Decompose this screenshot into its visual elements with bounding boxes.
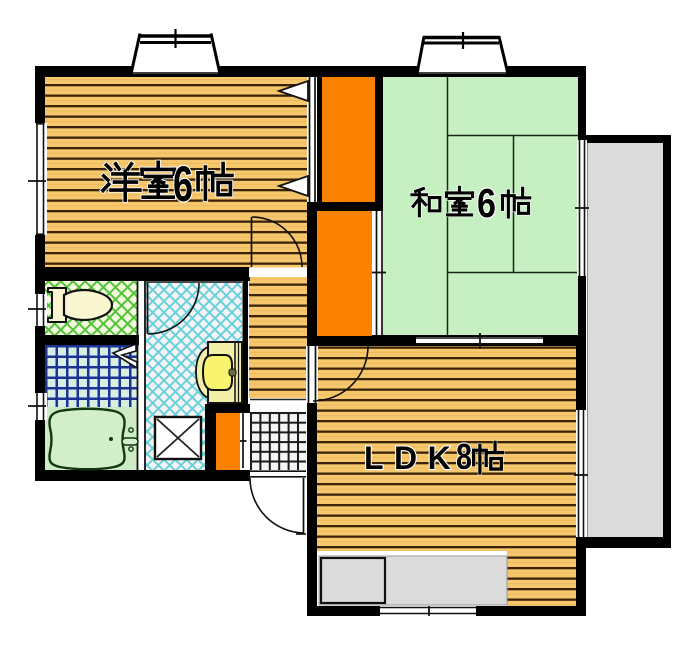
svg-text:6: 6 [477, 180, 496, 226]
svg-text:6: 6 [173, 156, 193, 212]
svg-text:LDK: LDK [364, 440, 461, 476]
svg-text:8: 8 [456, 436, 472, 477]
